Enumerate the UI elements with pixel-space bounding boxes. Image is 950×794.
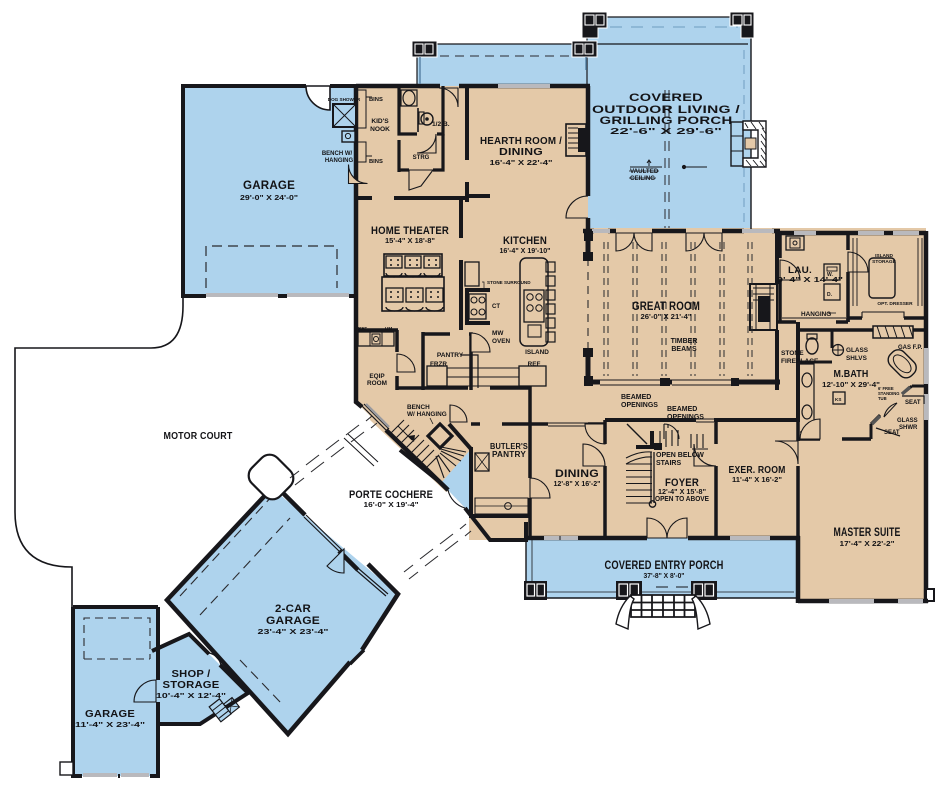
svg-text:OPEN TO ABOVE: OPEN TO ABOVE xyxy=(655,496,709,503)
svg-text:17'-4" X 22'-2": 17'-4" X 22'-2" xyxy=(840,539,895,548)
svg-text:TIMBER: TIMBER xyxy=(671,338,698,345)
svg-text:11'-4" X 23'-4": 11'-4" X 23'-4" xyxy=(75,722,145,729)
svg-text:10'-4" X 12'-4": 10'-4" X 12'-4" xyxy=(156,693,226,700)
svg-text:16'-0" X 19'-4": 16'-0" X 19'-4" xyxy=(364,500,419,509)
svg-text:OPEN BELOW: OPEN BELOW xyxy=(656,452,704,459)
svg-text:KS: KS xyxy=(835,397,841,402)
svg-text:BENCH: BENCH xyxy=(407,404,430,411)
svg-text:STONE SURROUND: STONE SURROUND xyxy=(487,280,531,285)
svg-text:REF: REF xyxy=(358,326,367,331)
svg-text:FIREPLACE: FIREPLACE xyxy=(781,358,819,365)
svg-text:SEAT: SEAT xyxy=(884,430,900,436)
svg-text:BINS: BINS xyxy=(369,159,383,165)
svg-text:STAIRS: STAIRS xyxy=(656,460,681,467)
svg-text:D.: D. xyxy=(827,292,833,298)
svg-text:CT: CT xyxy=(492,304,500,310)
svg-text:12'-8" X 16'-2": 12'-8" X 16'-2" xyxy=(554,481,601,488)
svg-text:ISLAND: ISLAND xyxy=(875,253,893,259)
svg-text:16'-4" X 19'-10": 16'-4" X 19'-10" xyxy=(500,246,551,255)
svg-text:W.: W. xyxy=(827,272,833,278)
svg-text:ROOM: ROOM xyxy=(367,380,387,387)
svg-text:23'-4" X 23'-4": 23'-4" X 23'-4" xyxy=(258,627,329,636)
svg-text:GARAGE: GARAGE xyxy=(243,178,295,192)
svg-text:GREAT ROOM: GREAT ROOM xyxy=(632,299,700,313)
svg-text:9'-4" X 14'-4": 9'-4" X 14'-4" xyxy=(777,277,843,284)
svg-text:SEAT: SEAT xyxy=(905,400,921,406)
svg-text:EXER. ROOM: EXER. ROOM xyxy=(729,464,786,476)
svg-text:KID'S: KID'S xyxy=(371,118,389,125)
svg-text:29'-0" X 24'-0": 29'-0" X 24'-0" xyxy=(240,193,299,202)
svg-text:M.BATH: M.BATH xyxy=(834,369,869,380)
svg-text:OPENINGS: OPENINGS xyxy=(621,402,658,409)
svg-text:EQIP: EQIP xyxy=(369,373,385,380)
svg-text:OPENINGS: OPENINGS xyxy=(667,414,704,421)
svg-text:STORAGE: STORAGE xyxy=(872,259,896,265)
svg-text:PANTRY: PANTRY xyxy=(437,352,464,359)
svg-text:FOYER: FOYER xyxy=(665,477,699,489)
svg-text:37'-8" X 8'-0": 37'-8" X 8'-0" xyxy=(644,571,685,580)
svg-text:LAU.: LAU. xyxy=(788,265,812,276)
svg-text:GARAGE: GARAGE xyxy=(85,708,135,720)
svg-text:VAULTED: VAULTED xyxy=(630,168,659,175)
svg-text:BINS: BINS xyxy=(369,97,383,103)
svg-text:GARAGE: GARAGE xyxy=(266,615,320,627)
svg-text:12'-4" X 15'-8": 12'-4" X 15'-8" xyxy=(658,489,706,496)
svg-text:STONE: STONE xyxy=(781,350,804,357)
svg-text:SHLVS: SHLVS xyxy=(846,355,868,362)
svg-text:PANTRY: PANTRY xyxy=(492,450,526,459)
svg-text:OPT. DRESSER: OPT. DRESSER xyxy=(877,301,913,307)
svg-text:SHOP /: SHOP / xyxy=(172,669,211,680)
svg-text:ISLAND: ISLAND xyxy=(525,349,549,356)
svg-text:STORAGE: STORAGE xyxy=(163,680,220,691)
svg-text:MW: MW xyxy=(492,330,504,337)
svg-text:11'-4" X 16'-2": 11'-4" X 16'-2" xyxy=(732,477,782,484)
svg-text:TUB: TUB xyxy=(878,396,887,401)
svg-text:SHWR: SHWR xyxy=(899,425,918,431)
svg-text:CEILING: CEILING xyxy=(630,175,655,182)
svg-text:STRG: STRG xyxy=(413,155,430,161)
svg-text:DINING: DINING xyxy=(499,146,543,158)
svg-text:BEAMED: BEAMED xyxy=(621,394,651,401)
svg-text:NOOK: NOOK xyxy=(370,126,390,133)
svg-text:UM: UM xyxy=(385,326,392,331)
svg-text:BEAMED: BEAMED xyxy=(667,406,697,413)
svg-text:HANGING: HANGING xyxy=(325,158,354,164)
svg-text:BENCH W/: BENCH W/ xyxy=(322,151,353,157)
svg-text:FRZR: FRZR xyxy=(430,361,447,368)
svg-text:BEAMS: BEAMS xyxy=(671,346,697,353)
svg-text:HANGING: HANGING xyxy=(801,311,831,318)
svg-text:1/2 B.: 1/2 B. xyxy=(432,121,450,128)
svg-text:GRILLING PORCH: GRILLING PORCH xyxy=(600,115,733,127)
svg-text:REF: REF xyxy=(528,361,541,368)
svg-text:DOG SHOWER: DOG SHOWER xyxy=(328,97,361,102)
svg-text:26'-0" X 21'-4": 26'-0" X 21'-4" xyxy=(641,312,692,321)
svg-text:OVEN: OVEN xyxy=(492,338,510,345)
svg-text:GLASS: GLASS xyxy=(846,347,869,354)
svg-text:GAS F.P.: GAS F.P. xyxy=(898,345,923,351)
svg-text:W/ HANGING: W/ HANGING xyxy=(407,411,447,418)
svg-text:15'-4" X 18'-8": 15'-4" X 18'-8" xyxy=(385,236,435,245)
svg-text:12'-10" X 29'-4": 12'-10" X 29'-4" xyxy=(822,382,880,389)
svg-text:22'-6" X 29'-6": 22'-6" X 29'-6" xyxy=(610,127,723,136)
svg-text:GLASS: GLASS xyxy=(897,418,918,424)
svg-text:MASTER SUITE: MASTER SUITE xyxy=(834,525,901,539)
svg-text:COVERED: COVERED xyxy=(629,92,703,104)
svg-text:16'-4" X 22'-4": 16'-4" X 22'-4" xyxy=(490,158,553,167)
svg-text:DINING: DINING xyxy=(555,468,599,480)
svg-text:MOTOR COURT: MOTOR COURT xyxy=(164,431,233,442)
svg-text:2-CAR: 2-CAR xyxy=(275,603,311,615)
